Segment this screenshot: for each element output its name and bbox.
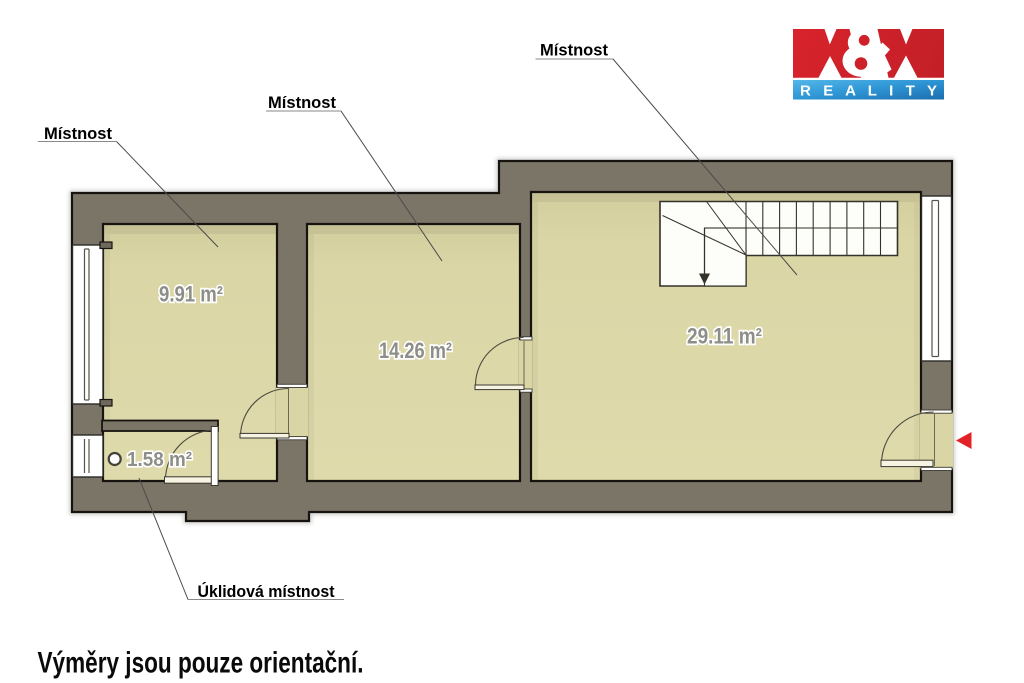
- svg-text:29.11 m²: 29.11 m²: [687, 324, 762, 349]
- svg-text:1.58 m²: 1.58 m²: [127, 449, 192, 471]
- svg-text:9.91 m²: 9.91 m²: [159, 282, 223, 307]
- svg-text:Úklidová místnost: Úklidová místnost: [198, 582, 335, 601]
- svg-text:Místnost: Místnost: [268, 94, 336, 112]
- svg-text:14.26 m²: 14.26 m²: [379, 338, 452, 363]
- svg-text:Místnost: Místnost: [44, 125, 112, 143]
- svg-text:Místnost: Místnost: [540, 42, 608, 60]
- svg-text:Výměry jsou pouze orientační.: Výměry jsou pouze orientační.: [38, 647, 364, 680]
